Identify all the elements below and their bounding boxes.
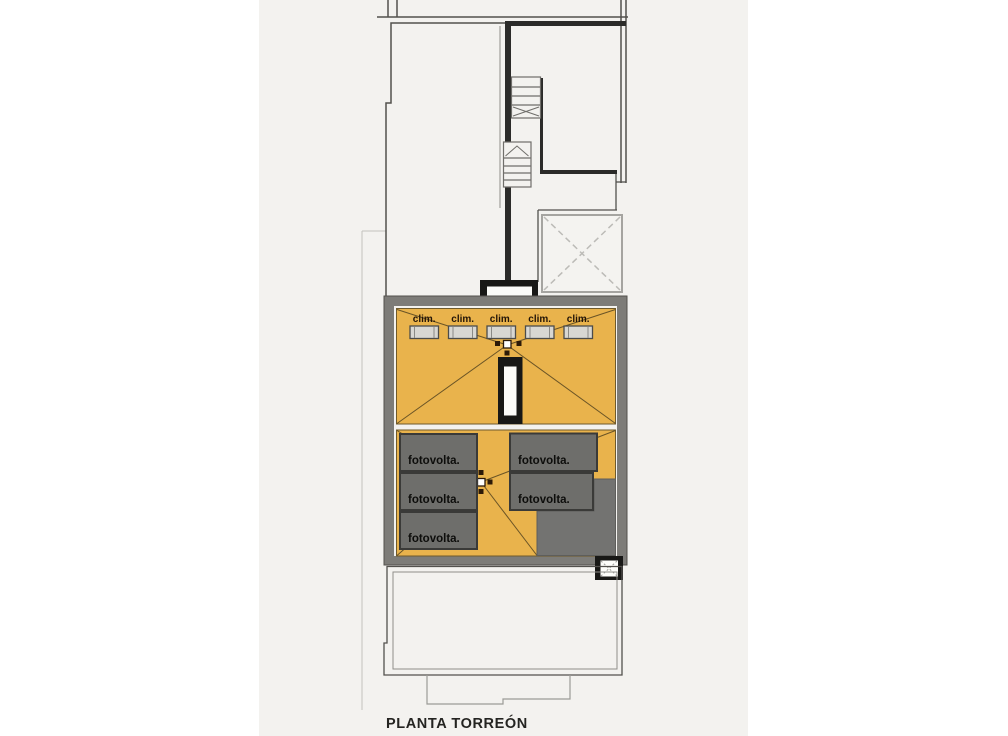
pv-label: fotovolta. — [518, 494, 570, 506]
roof-drain-marker — [595, 556, 623, 580]
lower-stair-flight — [504, 142, 532, 187]
lower-terrace-outline — [384, 567, 622, 705]
pv-label: fotovolta. — [518, 455, 570, 467]
clim-label: clim. — [490, 314, 513, 325]
pv-panel-4: fotovolta. — [510, 434, 597, 472]
pv-panel-1: fotovolta. — [400, 434, 477, 471]
upper-stair-flight — [512, 77, 541, 118]
site-boundary-line — [362, 231, 386, 710]
pv-panel-5: fotovolta. — [510, 473, 593, 510]
floor-plan-drawing: clim. clim. clim. clim. clim. — [0, 0, 1008, 736]
architectural-plan-page: clim. clim. clim. clim. clim. — [0, 0, 1008, 736]
pv-label: fotovolta. — [408, 455, 460, 467]
clim-label: clim. — [451, 314, 474, 325]
plan-title: PLANTA TORREÓN — [386, 716, 528, 732]
pv-label: fotovolta. — [408, 494, 460, 506]
pv-label: fotovolta. — [408, 533, 460, 545]
clim-label: clim. — [413, 314, 436, 325]
clim-unit-4: clim. — [526, 314, 555, 339]
clim-unit-5: clim. — [564, 314, 593, 339]
clim-label: clim. — [567, 314, 590, 325]
clim-label: clim. — [528, 314, 551, 325]
clim-unit-2: clim. — [449, 314, 478, 339]
clim-unit-1: clim. — [410, 314, 439, 339]
pv-panel-3: fotovolta. — [400, 512, 477, 549]
pv-panel-2: fotovolta. — [400, 473, 477, 510]
entrance-step-outline — [427, 675, 570, 704]
stairwell-opening — [498, 357, 523, 424]
skylight — [542, 215, 622, 292]
clim-unit-3: clim. — [487, 314, 516, 339]
